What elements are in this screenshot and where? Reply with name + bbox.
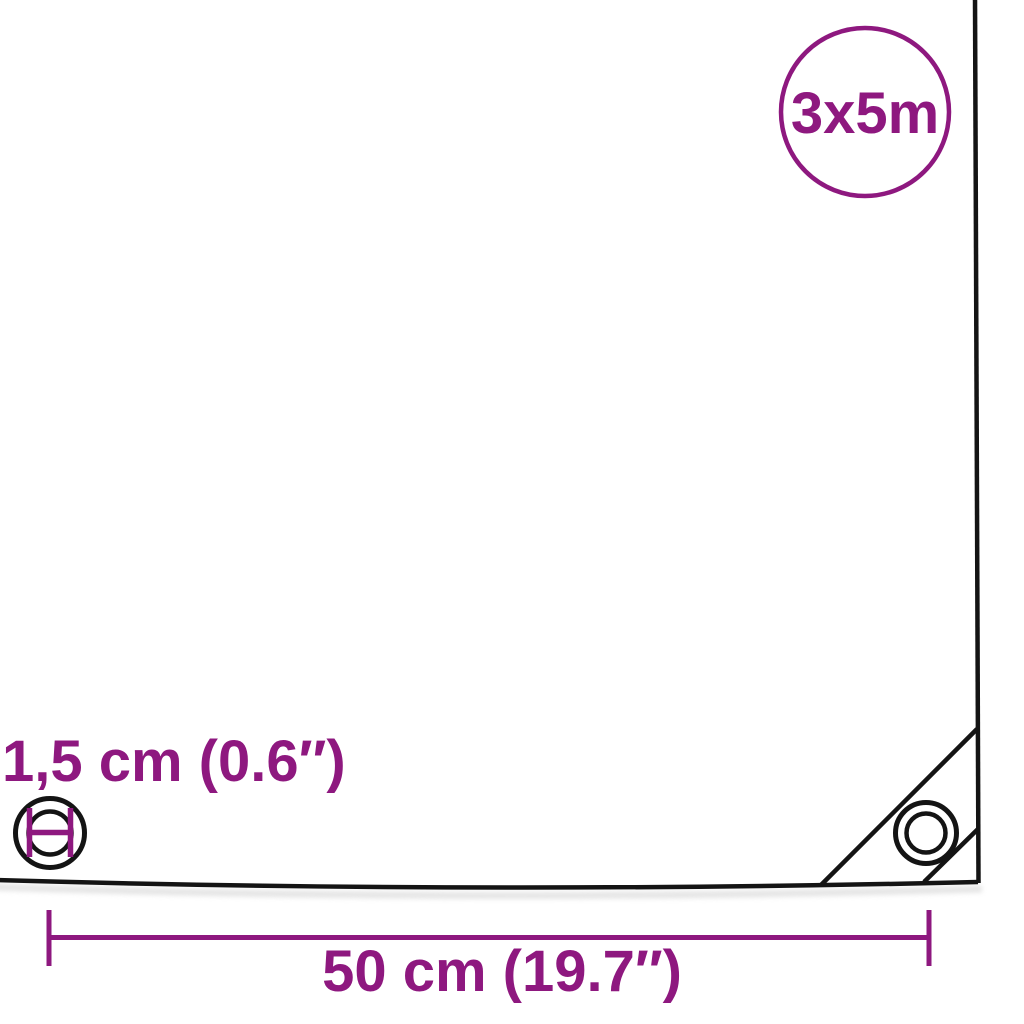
diagram-linework — [0, 0, 1024, 1024]
grommet-diameter-label: 1,5 cm (0.6″) — [2, 733, 346, 791]
grommet-spacing-label: 50 cm (19.7″) — [322, 943, 682, 1001]
edge-grommet-icon — [16, 799, 85, 868]
corner-grommet-icon — [896, 803, 957, 864]
corner-seam-long — [821, 729, 977, 885]
tarp-right-edge — [975, 0, 979, 883]
size-badge-label: 3x5m — [791, 85, 939, 143]
tarp-bottom-edge — [0, 880, 978, 888]
tarpaulin-dimension-diagram: 3x5m 1,5 cm (0.6″) 50 cm (19.7″) — [0, 0, 1024, 1024]
